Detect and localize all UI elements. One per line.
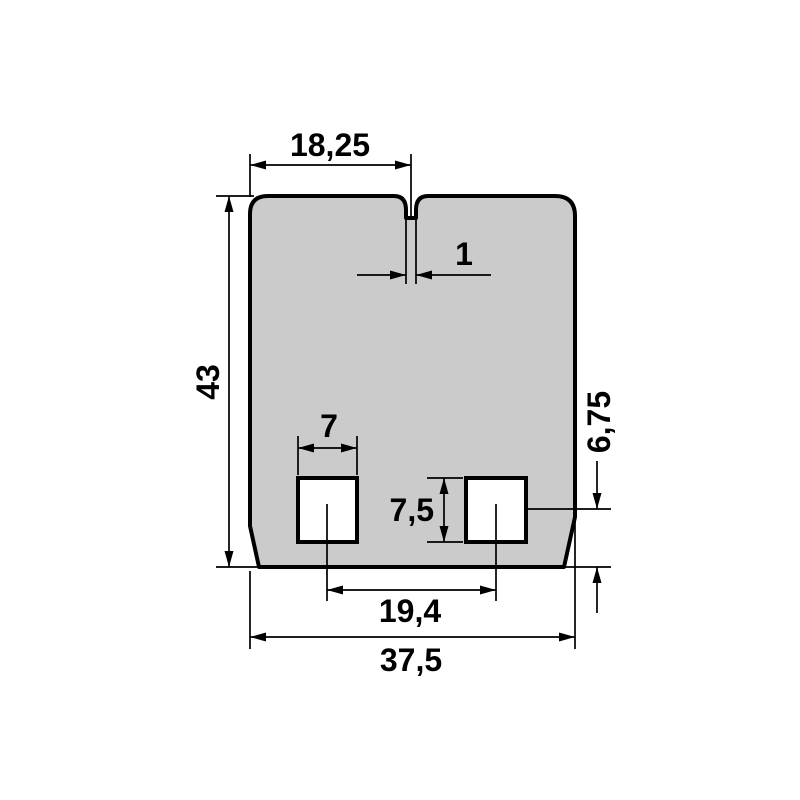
dim-top-width-arrow-left bbox=[250, 161, 266, 170]
dim-height-arrow-bottom bbox=[225, 551, 234, 567]
dim-cutout-spacing-arrow-right bbox=[480, 586, 496, 595]
dim-total-width-arrow-left bbox=[250, 633, 266, 642]
dim-top-width-label: 18,25 bbox=[290, 127, 370, 163]
dim-total-width-label: 37,5 bbox=[380, 642, 442, 678]
dim-cutout-spacing-arrow-left bbox=[327, 586, 343, 595]
dim-cutout-height-label: 7,5 bbox=[390, 492, 434, 528]
drawing-canvas: 18,25 1 43 7 7,5 bbox=[0, 0, 800, 800]
dim-top-width-arrow-right bbox=[395, 161, 411, 170]
dim-height-arrow-top bbox=[225, 196, 234, 212]
dim-cutout-spacing-label: 19,4 bbox=[379, 593, 441, 629]
dim-center-to-bottom-arrow-top bbox=[593, 493, 602, 509]
dim-notch-label: 1 bbox=[455, 236, 473, 272]
dim-center-to-bottom-label: 6,75 bbox=[581, 391, 617, 453]
dim-height-label: 43 bbox=[190, 364, 226, 400]
dim-cutout-width-label: 7 bbox=[320, 408, 338, 444]
dim-total-width-arrow-right bbox=[559, 633, 575, 642]
technical-drawing: 18,25 1 43 7 7,5 bbox=[0, 0, 800, 800]
dim-center-to-bottom-arrow-bottom bbox=[593, 567, 602, 583]
